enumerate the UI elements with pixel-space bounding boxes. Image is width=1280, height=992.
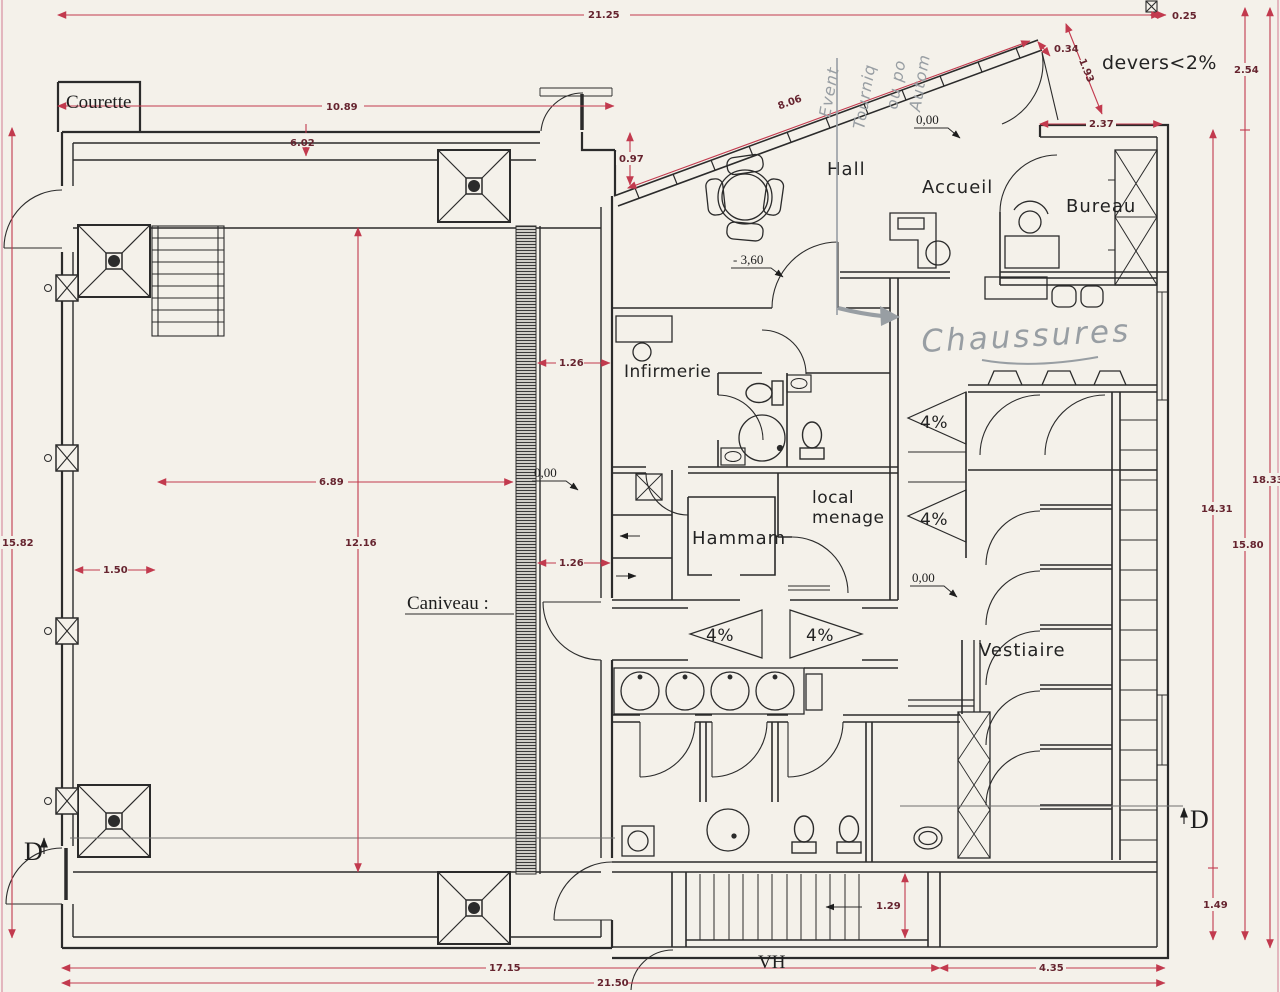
desk-icon — [890, 213, 950, 268]
column-icon — [45, 788, 79, 814]
toilet-icon — [746, 381, 783, 405]
room-label-local-menage-line1: local — [812, 488, 854, 508]
skylight-icon — [78, 225, 150, 297]
table-icon — [705, 154, 784, 242]
handwritten-chaussures: Chaussures — [921, 313, 1132, 360]
section-marker-left: D — [24, 837, 43, 866]
toilet-icon — [837, 816, 861, 853]
pencil-arrow-icon — [838, 308, 882, 316]
skylight-icon — [438, 872, 510, 944]
counter-icon — [985, 277, 1047, 299]
outer-walls — [58, 82, 1168, 958]
handwritten-note-word: Tourniq — [849, 62, 879, 130]
dim-offset-top-right: 0.25 — [1172, 11, 1197, 22]
ramp-label: 4% — [920, 413, 948, 433]
stairs-top-left — [152, 226, 224, 336]
dim-1-26-lower: 1.26 — [559, 558, 584, 569]
dim-1-26-upper: 1.26 — [559, 358, 584, 369]
dim-15-80: 15.80 — [1232, 540, 1264, 551]
dim-10-89: 10.89 — [326, 102, 358, 113]
stool-icon — [1052, 286, 1076, 307]
ramp-label: 4% — [706, 626, 734, 646]
column-icon — [45, 618, 79, 644]
bench-icon — [988, 371, 1126, 385]
closet-icon — [1108, 150, 1157, 285]
dim-12-16: 12.16 — [345, 538, 377, 549]
room-label-hall: Hall — [827, 159, 866, 180]
room-label-courette: Courette — [66, 92, 131, 113]
dim-18-33: 18.33 — [1252, 475, 1280, 486]
drain-box-icon — [1146, 1, 1157, 12]
level-lower: - 3,60 — [733, 252, 763, 267]
level-ground: 0,00 — [534, 465, 557, 480]
stair-treads — [616, 536, 862, 940]
washbasin-icon — [707, 809, 749, 851]
level-markers: 0,00 - 3,60 0,00 0,00 — [532, 112, 960, 597]
annotation-devers: devers<2% — [1102, 52, 1217, 74]
drain-icon — [778, 446, 783, 451]
toilet-icon — [800, 422, 824, 459]
ramp-label: 4% — [806, 626, 834, 646]
column-icon — [45, 275, 79, 301]
annotation-caniveau: Caniveau : — [407, 593, 489, 614]
room-label-accueil: Accueil — [922, 177, 993, 198]
level-ground: 0,00 — [916, 112, 939, 127]
room-label-infirmerie: Infirmerie — [624, 362, 711, 382]
ramp-label: 4% — [920, 510, 948, 530]
furniture — [614, 150, 1157, 858]
sink-icon — [787, 375, 811, 392]
handwritten-underline — [982, 357, 1098, 364]
desk-icon — [1005, 201, 1059, 268]
room-label-local-menage-line2: menage — [812, 508, 884, 528]
shower-tray-icon — [739, 415, 785, 461]
dim-1-29: 1.29 — [876, 901, 901, 912]
sink-icon — [721, 448, 745, 465]
drain-icon — [732, 834, 736, 838]
column-icon — [45, 445, 79, 471]
dim-4-35: 4.35 — [1039, 963, 1064, 974]
room-label-bureau: Bureau — [1066, 196, 1136, 217]
dim-6-02: 6.02 — [290, 138, 315, 149]
stool-icon — [1081, 286, 1103, 307]
washbasin-row — [614, 668, 822, 714]
section-line — [44, 806, 1184, 854]
stair-label-vh: VH — [758, 952, 786, 973]
dim-2-54: 2.54 — [1234, 65, 1259, 76]
room-label-hammam: Hammam — [692, 528, 786, 549]
sink-icon — [628, 831, 648, 851]
skylight-icon — [438, 150, 510, 222]
bench-shelf-icon — [908, 640, 990, 858]
bidet-icon — [914, 827, 942, 849]
toilet-icon — [792, 816, 816, 853]
dim-1-50: 1.50 — [103, 565, 128, 576]
level-ground: 0,00 — [912, 570, 935, 585]
dim-0-97: 0.97 — [619, 154, 644, 165]
dim-0-34: 0.34 — [1054, 44, 1079, 55]
dim-17-15: 17.15 — [489, 963, 521, 974]
desk-icon — [616, 316, 672, 342]
shower-box-icon — [636, 474, 662, 500]
section-marker-right: D — [1190, 805, 1209, 834]
dim-1-49: 1.49 — [1203, 900, 1228, 911]
floor-plan-sheet: 21.25 0.25 10.89 6.02 8.06 0.97 0.34 1.9… — [0, 0, 1280, 992]
dim-15-82: 15.82 — [2, 538, 34, 549]
bidet-icon — [919, 832, 937, 845]
chair-icon — [633, 343, 651, 361]
dim-total-top: 21.25 — [588, 10, 620, 21]
skylight-symbols — [78, 150, 510, 944]
dim-6-89: 6.89 — [319, 477, 344, 488]
inner-wall-faces — [73, 137, 1157, 947]
dim-21-50: 21.50 — [597, 978, 629, 989]
room-label-vestiaire: Vestiaire — [979, 640, 1066, 661]
dim-2-37: 2.37 — [1089, 119, 1114, 130]
dim-14-31: 14.31 — [1201, 504, 1233, 515]
floor-plan-drawing: 21.25 0.25 10.89 6.02 8.06 0.97 0.34 1.9… — [0, 0, 1280, 992]
skylight-icon — [78, 785, 150, 857]
caniveau-drain-strip — [516, 226, 536, 874]
